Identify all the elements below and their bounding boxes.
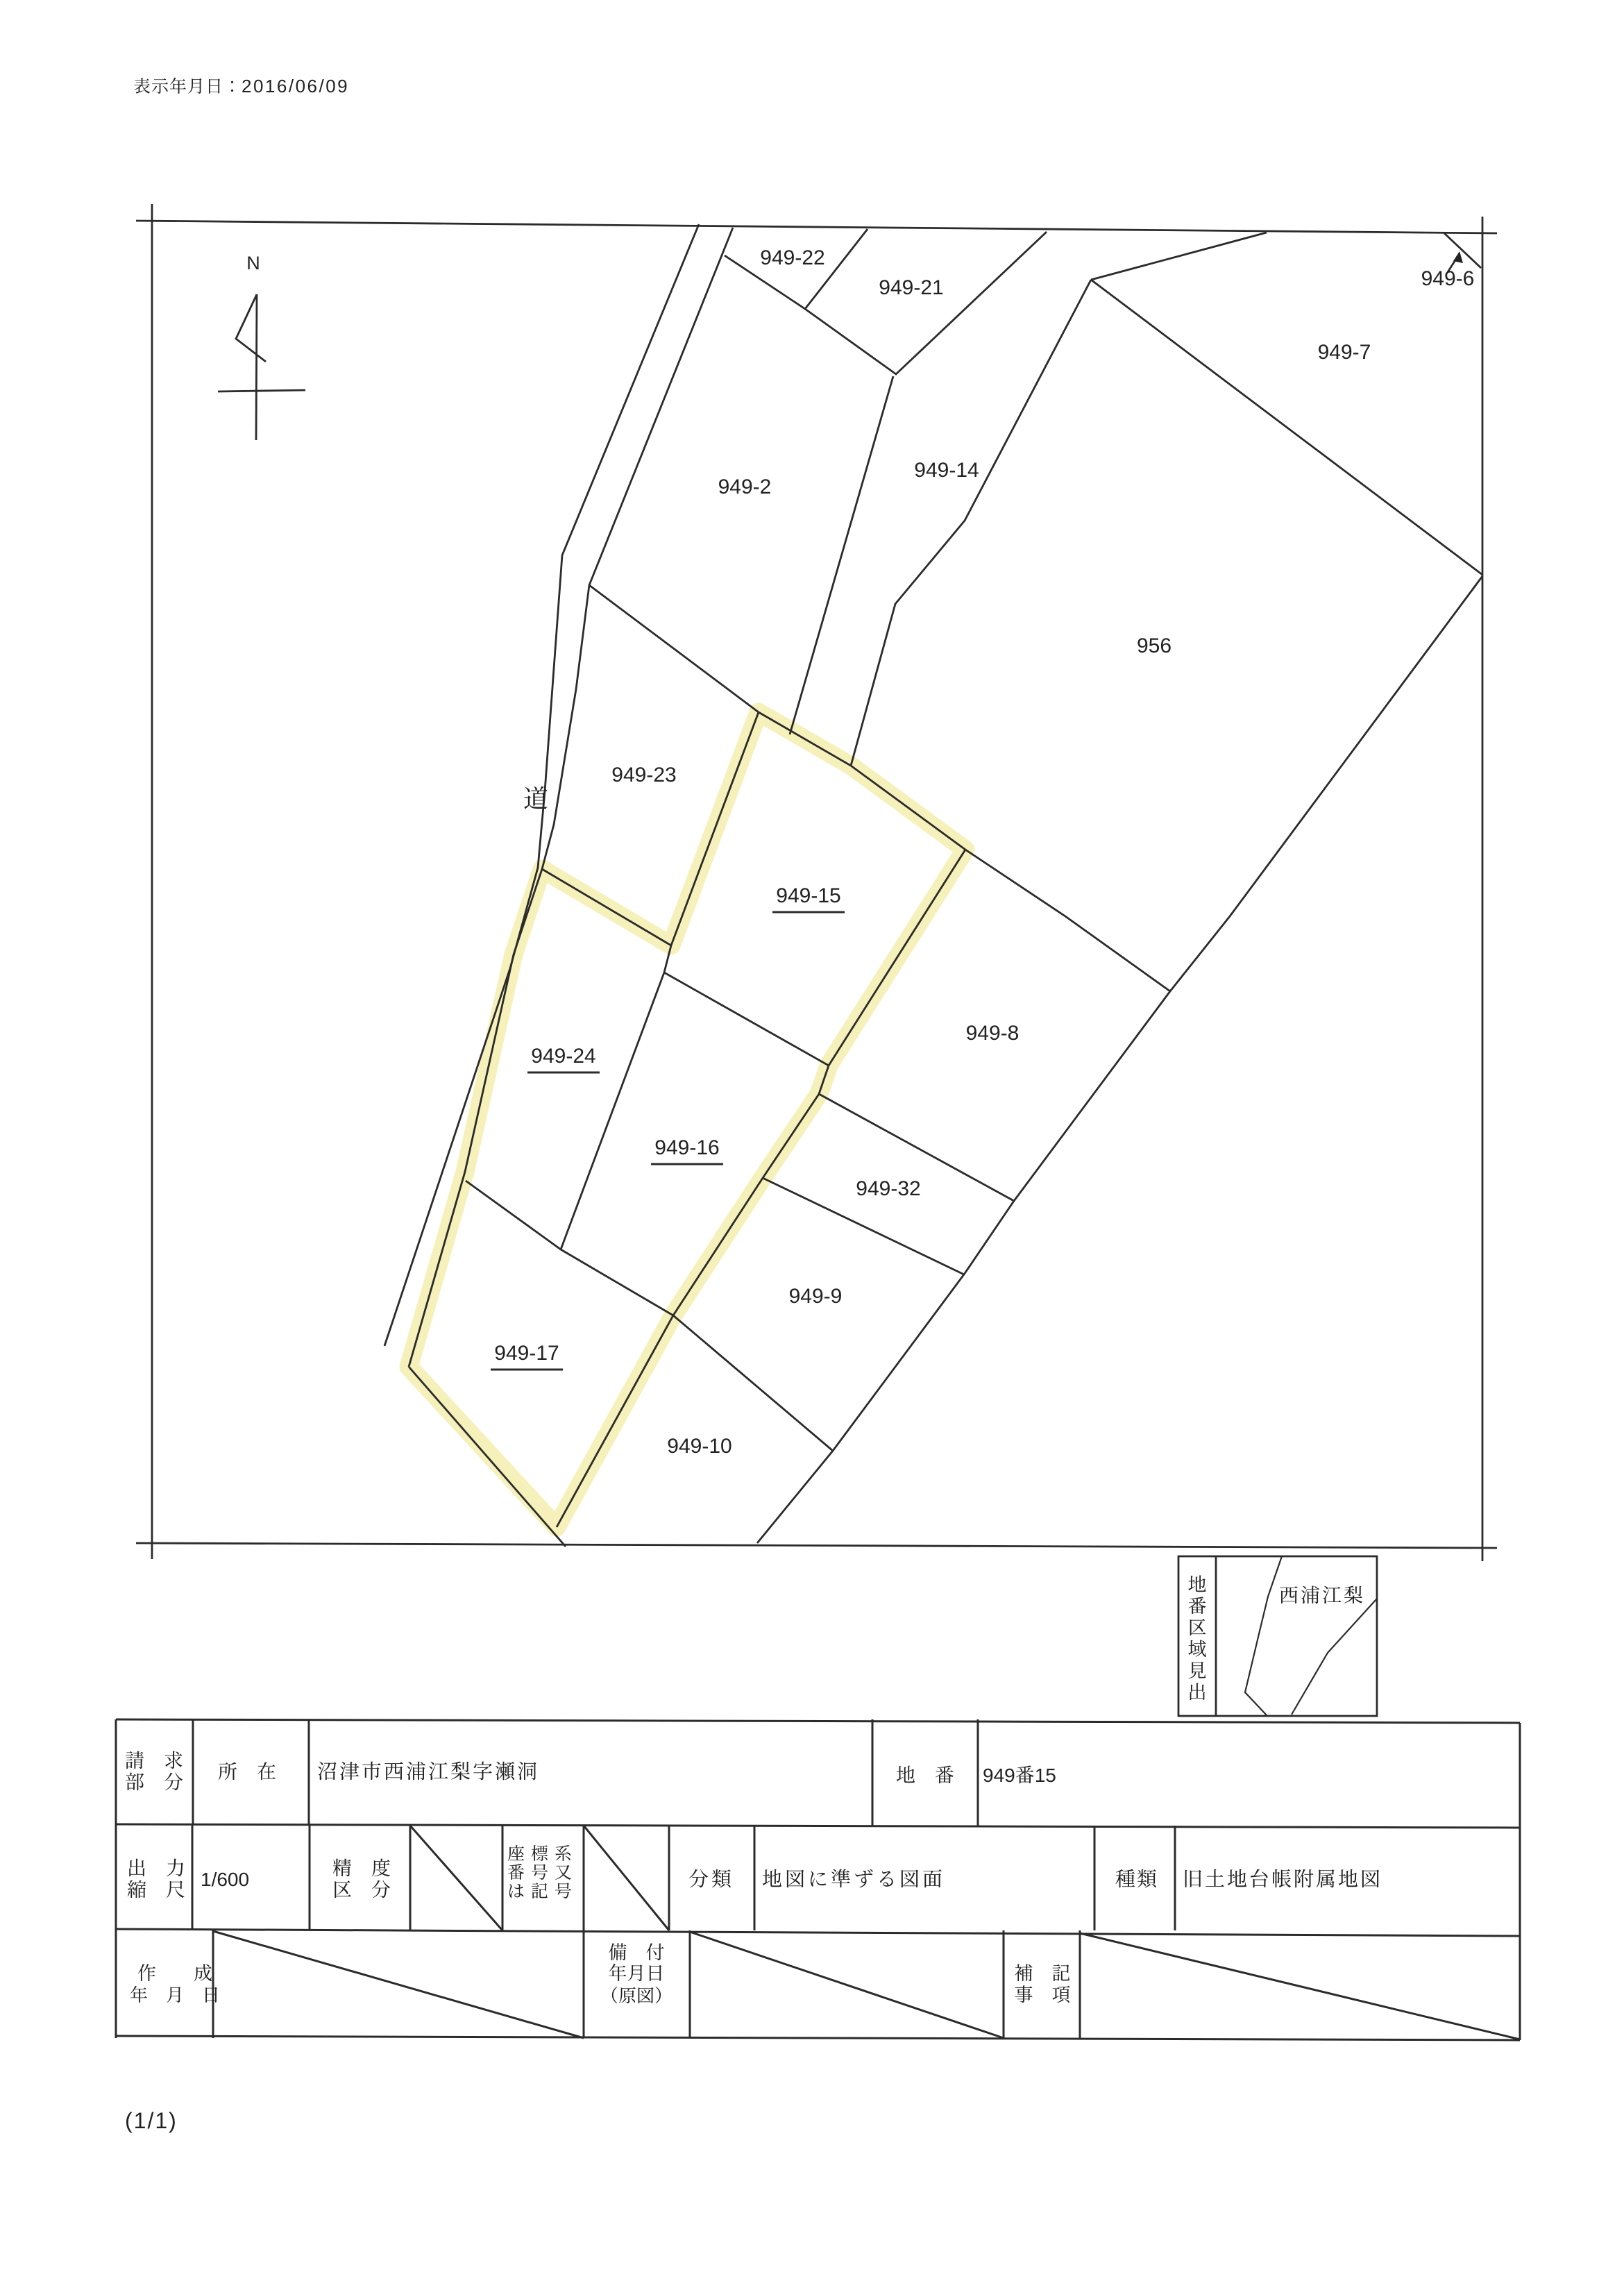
svg-text:区 分: 区 分: [332, 1875, 391, 1903]
svg-text:949-24: 949-24: [531, 1045, 595, 1068]
svg-text:949番15: 949番15: [983, 1760, 1056, 1788]
svg-text:年 月 日: 年 月 日: [130, 1981, 220, 2007]
svg-text:部 分: 部 分: [125, 1767, 183, 1795]
svg-text:949-15: 949-15: [776, 884, 840, 907]
svg-text:旧土地台帳附属地図: 旧土地台帳附属地図: [1183, 1864, 1382, 1892]
svg-text:949-2: 949-2: [718, 475, 772, 498]
svg-text:949-14: 949-14: [914, 459, 979, 482]
svg-text:949-22: 949-22: [760, 246, 824, 269]
svg-text:949-10: 949-10: [667, 1435, 731, 1458]
svg-text:沼津市西浦江梨字瀬洞: 沼津市西浦江梨字瀬洞: [317, 1756, 539, 1785]
svg-text:（原図）: （原図）: [600, 1982, 673, 2007]
svg-text:表示年月日：2016/06/09: 表示年月日：2016/06/09: [133, 73, 349, 98]
svg-text:西浦江梨: 西浦江梨: [1279, 1581, 1365, 1608]
svg-text:949-16: 949-16: [654, 1136, 719, 1159]
svg-text:縮 尺: 縮 尺: [127, 1875, 185, 1903]
svg-text:956: 956: [1137, 634, 1172, 657]
svg-text:949-9: 949-9: [789, 1285, 843, 1308]
svg-text:所 在: 所 在: [218, 1757, 276, 1785]
svg-text:949-32: 949-32: [856, 1177, 920, 1200]
svg-text:事 項: 事 項: [1015, 1980, 1071, 2007]
svg-text:949-17: 949-17: [494, 1342, 559, 1365]
svg-text:N: N: [246, 253, 260, 273]
svg-text:種類: 種類: [1115, 1864, 1158, 1892]
svg-text:地 番: 地 番: [896, 1760, 954, 1788]
svg-text:は記号: は記号: [507, 1878, 578, 1903]
svg-text:949-21: 949-21: [879, 276, 943, 299]
svg-text:分類: 分類: [688, 1864, 734, 1892]
svg-text:道: 道: [523, 780, 548, 815]
svg-text:出: 出: [1188, 1677, 1207, 1704]
svg-text:1/600: 1/600: [201, 1869, 249, 1890]
svg-text:949-6: 949-6: [1421, 267, 1475, 290]
svg-text:949-8: 949-8: [966, 1022, 1020, 1045]
svg-text:949-23: 949-23: [611, 764, 676, 786]
svg-text:地図に準ずる図面: 地図に準ずる図面: [762, 1864, 945, 1892]
svg-text:949-7: 949-7: [1318, 341, 1371, 364]
svg-text:(1/1): (1/1): [125, 2108, 178, 2133]
